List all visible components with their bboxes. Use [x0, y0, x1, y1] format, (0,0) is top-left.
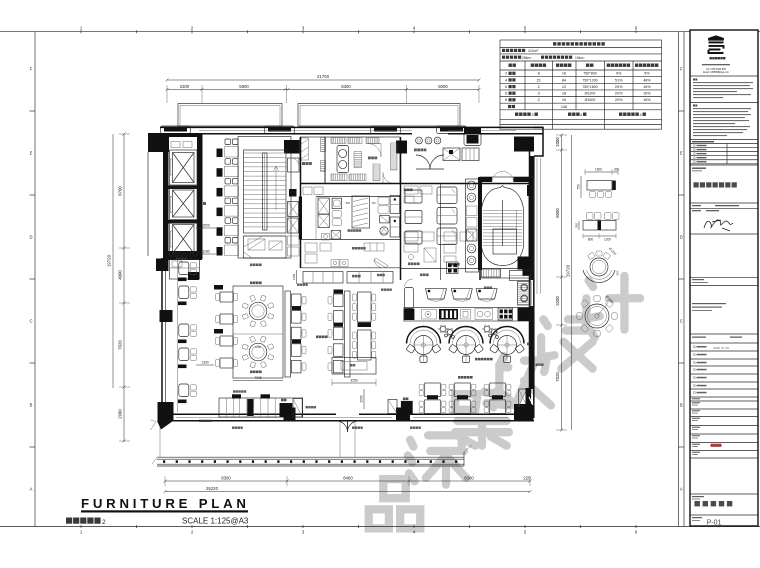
svg-text:154m²: 154m²: [575, 56, 585, 60]
svg-text:8700: 8700: [118, 186, 123, 196]
svg-text:4: 4: [639, 113, 641, 117]
svg-text:5900: 5900: [239, 84, 249, 89]
svg-text:D: D: [29, 235, 32, 240]
svg-text:1180: 1180: [202, 250, 209, 254]
svg-text:21700: 21700: [317, 74, 330, 79]
svg-text:1200: 1200: [604, 238, 611, 242]
svg-text:320: 320: [614, 168, 620, 172]
svg-text:2300: 2300: [180, 84, 190, 89]
svg-text:2018. 07. 06: 2018. 07. 06: [713, 346, 729, 350]
svg-text:7035: 7035: [254, 376, 261, 380]
svg-text:2530: 2530: [360, 395, 364, 402]
svg-text:835: 835: [346, 202, 351, 205]
svg-text:9%: 9%: [616, 72, 622, 76]
svg-text:1000: 1000: [555, 137, 560, 147]
svg-text:D: D: [680, 235, 683, 240]
svg-text:8300: 8300: [341, 84, 351, 89]
svg-text:1300: 1300: [201, 361, 208, 365]
svg-text:2: 2: [538, 98, 540, 102]
svg-text:3: 3: [538, 92, 540, 96]
svg-text:SCALE 1:125@A3: SCALE 1:125@A3: [182, 517, 249, 526]
svg-text:4: 4: [580, 113, 582, 117]
svg-text:5%: 5%: [644, 72, 650, 76]
svg-text:48%: 48%: [643, 78, 651, 82]
svg-text:3250: 3250: [350, 379, 358, 383]
svg-text:250: 250: [575, 223, 579, 228]
svg-text:8400: 8400: [343, 476, 353, 481]
svg-text:19720: 19720: [107, 254, 112, 267]
svg-text:3200: 3200: [555, 296, 560, 306]
svg-text:750*1600: 750*1600: [582, 85, 597, 89]
svg-text:1400: 1400: [292, 273, 296, 280]
svg-text:2: 2: [102, 519, 106, 526]
svg-text:P-01: P-01: [707, 520, 722, 527]
svg-text:16%: 16%: [643, 98, 651, 102]
svg-text:B: B: [30, 403, 33, 408]
svg-text:21: 21: [537, 78, 541, 82]
svg-text:25220: 25220: [206, 486, 219, 491]
svg-text:1200: 1200: [255, 345, 261, 349]
svg-text:E: E: [680, 151, 683, 156]
svg-text:16%: 16%: [643, 92, 651, 96]
svg-text:146: 146: [561, 105, 567, 109]
svg-text:700: 700: [372, 202, 377, 205]
svg-text:8300: 8300: [221, 476, 231, 481]
svg-text:2980: 2980: [118, 409, 123, 419]
svg-text:220: 220: [523, 476, 531, 481]
svg-text:750*1200: 750*1200: [582, 78, 597, 82]
svg-text:8: 8: [538, 72, 540, 76]
svg-text:F: F: [680, 67, 683, 72]
svg-text:Ø1200: Ø1200: [585, 92, 596, 96]
svg-text:20%: 20%: [615, 85, 623, 89]
svg-text:Tel: 0755 8326 886: Tel: 0755 8326 886: [706, 69, 726, 71]
svg-text:12: 12: [562, 85, 566, 89]
svg-text:750*800: 750*800: [583, 72, 596, 76]
svg-text:19720: 19720: [566, 264, 571, 277]
svg-text:C: C: [29, 319, 32, 324]
svg-text:20%: 20%: [615, 92, 623, 96]
svg-text:410m²: 410m²: [528, 49, 539, 53]
svg-text:16: 16: [562, 98, 566, 102]
svg-text:A: A: [30, 487, 33, 492]
svg-text:750: 750: [577, 184, 581, 190]
svg-text:18: 18: [562, 92, 566, 96]
svg-text:8: 8: [505, 98, 507, 102]
svg-text:B: B: [680, 403, 683, 408]
svg-text:E: E: [30, 151, 33, 156]
svg-text:5000: 5000: [438, 84, 448, 89]
svg-text:8300: 8300: [464, 476, 474, 481]
svg-text:1500: 1500: [202, 224, 210, 228]
svg-text:7020: 7020: [118, 340, 123, 350]
svg-text:800: 800: [588, 238, 594, 242]
svg-text:4000: 4000: [118, 270, 123, 280]
svg-text:1600: 1600: [595, 168, 602, 172]
svg-text:A: A: [680, 487, 683, 492]
svg-text:C: C: [680, 319, 683, 324]
svg-text:8500: 8500: [555, 208, 560, 218]
svg-text:16%: 16%: [643, 85, 651, 89]
svg-text:6: 6: [505, 85, 507, 89]
svg-text:20%: 20%: [615, 98, 623, 102]
svg-text:F: F: [30, 67, 33, 72]
svg-text:16: 16: [562, 72, 566, 76]
svg-text:500: 500: [616, 270, 620, 275]
svg-text:2: 2: [505, 72, 507, 76]
svg-text:4: 4: [505, 78, 507, 82]
svg-text:Email: 1358898@qq.com: Email: 1358898@qq.com: [703, 72, 729, 74]
svg-text:3: 3: [531, 113, 533, 117]
svg-text:FURNITURE PLAN: FURNITURE PLAN: [81, 496, 248, 511]
svg-text:Ø1500: Ø1500: [585, 98, 596, 102]
svg-text:6: 6: [505, 92, 507, 96]
svg-text:2: 2: [538, 85, 540, 89]
svg-text:84: 84: [562, 78, 566, 82]
svg-text:51%: 51%: [615, 78, 623, 82]
svg-text:256m²: 256m²: [522, 56, 532, 60]
svg-text:7020: 7020: [555, 372, 560, 382]
